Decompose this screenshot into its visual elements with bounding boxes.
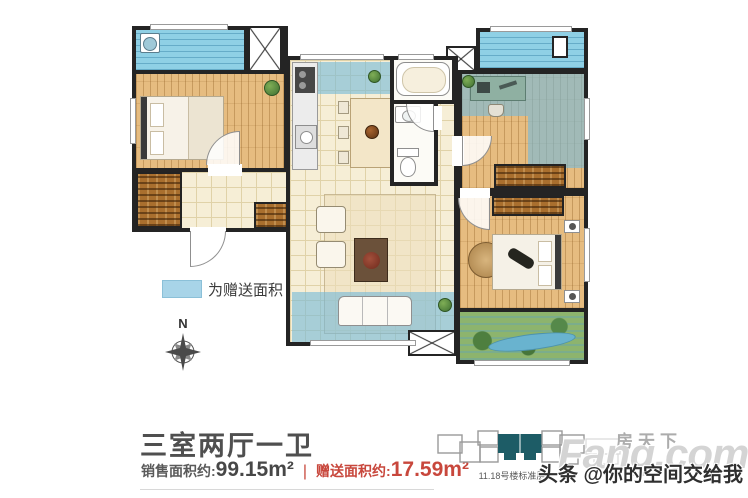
sale-area-value: 99.15m² [216, 458, 294, 482]
gift-area-study-side [528, 116, 584, 168]
coffee-table [354, 238, 388, 282]
hall-wardrobe [254, 202, 288, 229]
compass-rose-icon [163, 332, 203, 372]
clothing-item [506, 246, 536, 270]
water-feature [487, 329, 576, 356]
dining-chair [338, 126, 349, 139]
dining-chair [338, 101, 349, 114]
nightstand [564, 290, 580, 303]
north-balcony-study [476, 28, 588, 72]
entry-wardrobe [136, 172, 182, 228]
plant-icon [462, 75, 475, 88]
sale-area-label: 销售面积约: [141, 461, 216, 481]
window [490, 26, 572, 32]
kitchen-counter [292, 62, 318, 170]
armchair [316, 206, 346, 233]
toilet [397, 148, 419, 178]
gift-area-label: 赠送面积约: [316, 461, 391, 481]
table-centerpiece [365, 125, 379, 139]
flue-shaft-icon [248, 26, 282, 72]
window [584, 98, 590, 140]
bathtub [396, 62, 450, 96]
door-opening [460, 188, 490, 198]
window [474, 360, 570, 366]
window [310, 340, 416, 346]
door-opening [208, 164, 242, 176]
sofa [338, 296, 412, 326]
divider-line [140, 489, 434, 490]
compass-north-label: N [163, 316, 203, 331]
balcony-cabinet [552, 36, 568, 58]
plant-icon [438, 298, 452, 312]
entry-door-arc [190, 231, 226, 267]
window [398, 54, 434, 60]
legend-label: 为赠送面积 [208, 279, 283, 300]
flower-arrangement [363, 252, 380, 269]
stove-icon [295, 67, 315, 93]
master-wardrobe [492, 196, 564, 216]
armchair [316, 241, 346, 268]
dining-chair [338, 151, 349, 164]
washing-machine-icon [140, 33, 160, 53]
window [130, 98, 136, 144]
sink-icon [295, 125, 317, 149]
plant-icon [264, 80, 280, 96]
toutiao-watermark: 头条 @你的空间交给我 [538, 458, 743, 487]
window [584, 228, 590, 282]
window [150, 24, 228, 30]
desk [470, 76, 526, 101]
area-info-row: 销售面积约: 99.15m² | 赠送面积约: 17.59m² [141, 458, 469, 482]
desk-chair [488, 104, 504, 117]
plant-icon [368, 70, 381, 83]
dining-table [350, 98, 392, 168]
legend-swatch [162, 280, 202, 298]
window [300, 54, 384, 60]
garden-balcony [456, 308, 588, 364]
nightstand [564, 220, 580, 233]
area-separator: | [303, 463, 307, 481]
floorplan-page: 为赠送面积 N 三室两厅一卫 销售面积约: 99.15m² | 赠送面积约: 1… [0, 0, 748, 498]
study-wardrobe [494, 164, 566, 188]
master-bed [492, 234, 562, 290]
